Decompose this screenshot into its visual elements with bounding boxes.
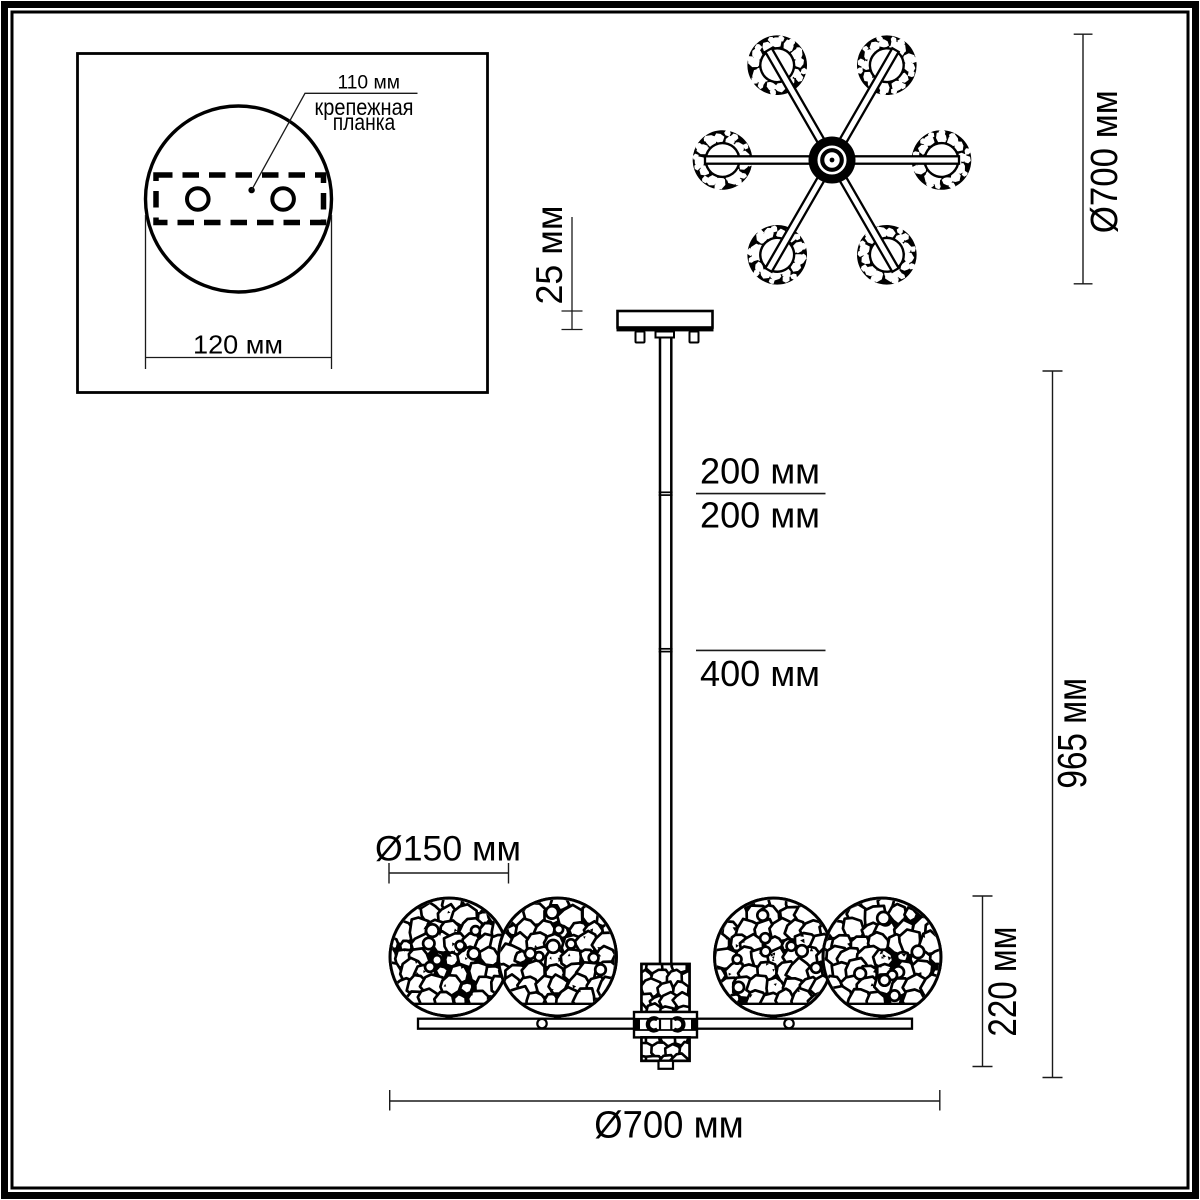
svg-text:120 мм: 120 мм [193,329,283,359]
svg-text:220 мм: 220 мм [981,927,1025,1037]
svg-text:400 мм: 400 мм [700,653,820,694]
svg-text:965 мм: 965 мм [1049,678,1095,789]
svg-text:Ø700 мм: Ø700 мм [594,1104,744,1146]
svg-text:Ø150 мм: Ø150 мм [375,829,521,869]
svg-text:200 мм: 200 мм [700,451,820,492]
svg-text:планка: планка [333,109,396,135]
svg-text:25 мм: 25 мм [529,206,570,305]
svg-text:110 мм: 110 мм [337,72,400,93]
svg-text:200 мм: 200 мм [700,495,820,536]
svg-text:Ø700 мм: Ø700 мм [1083,90,1126,233]
